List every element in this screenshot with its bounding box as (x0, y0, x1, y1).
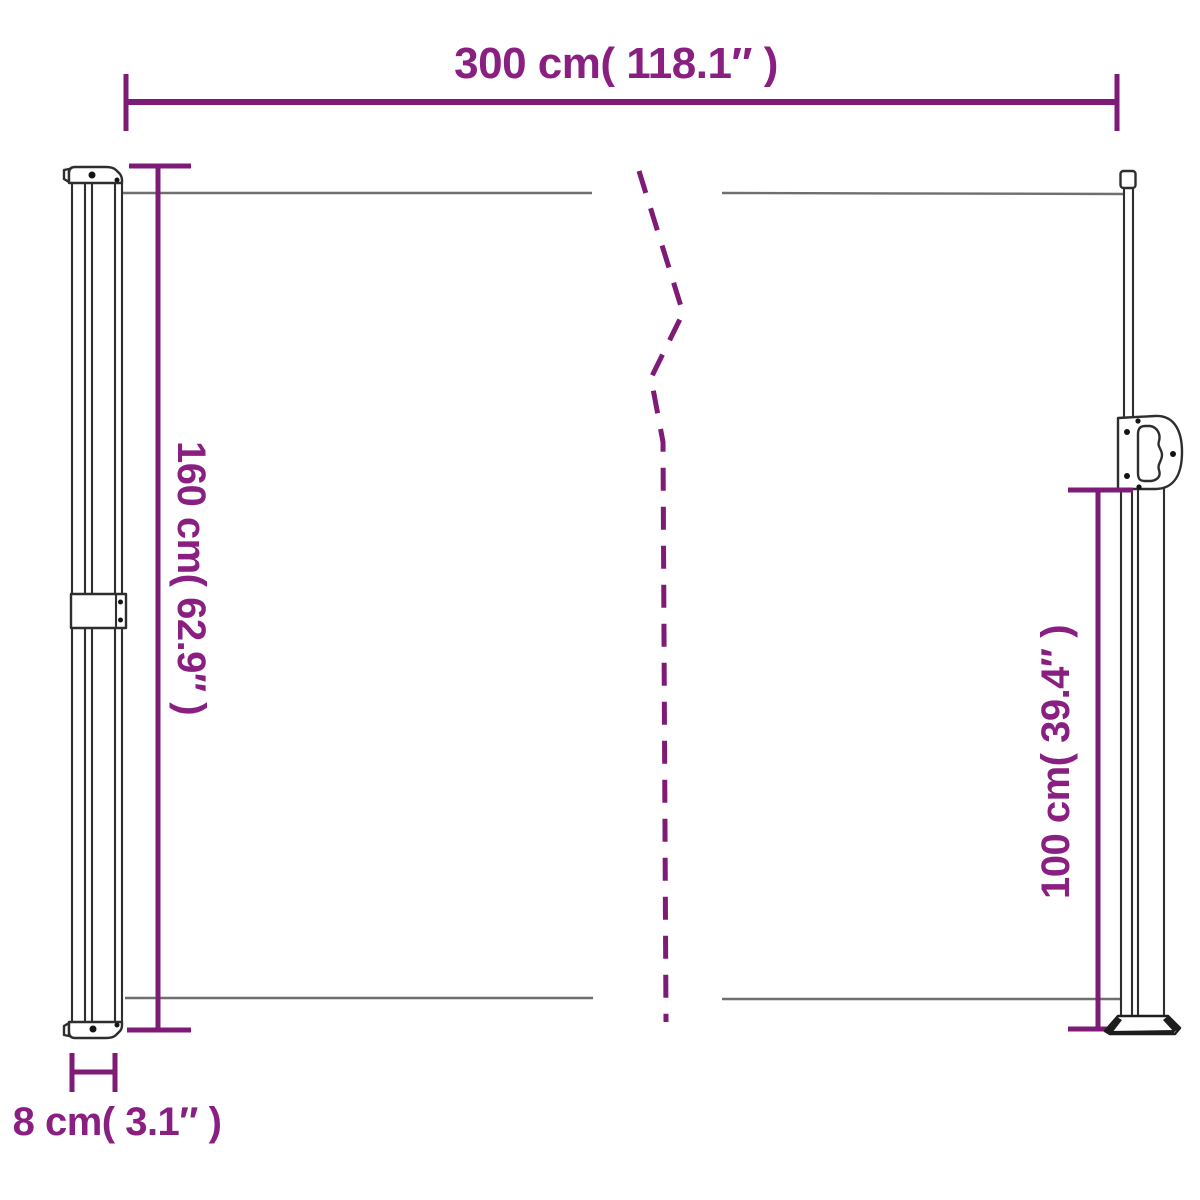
cassette-wall-bracket (71, 594, 126, 628)
depth-dimension-label: 8 cm( 3.1″ ) (13, 1102, 222, 1142)
awning-dimension-diagram: 300 cm( 118.1″ ) 160 cm( 62.9″ ) 100 cm(… (0, 0, 1200, 1200)
handle-grip-cutout (1138, 426, 1162, 481)
awning-fabric-bottom-edge (125, 998, 1122, 999)
fabric-break-dashed-line (639, 171, 683, 1022)
pole-top-cap (1121, 171, 1136, 188)
width-dimension-label: 300 cm( 118.1″ ) (454, 42, 778, 86)
pole-handle (1118, 416, 1182, 490)
bottom-depth-dimension (72, 1053, 115, 1092)
awning-fabric-top-edge (122, 193, 1125, 194)
pole-base-foot (1105, 1016, 1180, 1034)
left-height-dimension-label: 160 cm( 62.9″ ) (171, 441, 211, 715)
support-pole (1121, 171, 1165, 1019)
right-height-dimension-label: 100 cm( 39.4″ ) (1036, 625, 1076, 899)
